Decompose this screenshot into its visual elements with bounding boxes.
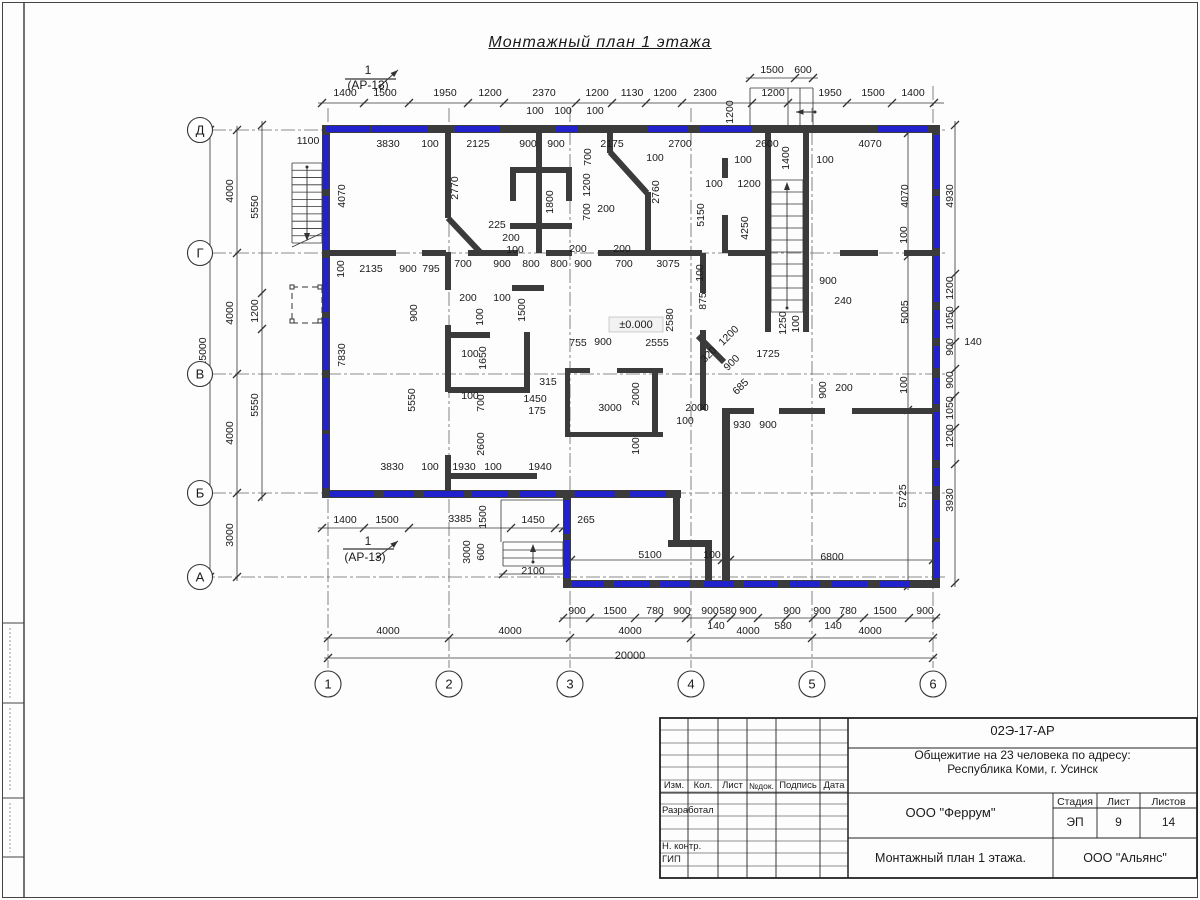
window [326, 126, 370, 132]
window [323, 318, 329, 370]
dim-text: 1500 [861, 87, 885, 99]
window [372, 126, 428, 132]
dim-text: 6800 [820, 551, 844, 563]
project-name-line2: Республика Коми, г. Усинск [848, 763, 1197, 777]
dim-text: 900 [783, 605, 801, 617]
dim-text: 4000 [376, 625, 400, 637]
dim-text: 2555 [645, 337, 669, 349]
dim-text: 900 [399, 263, 417, 275]
window [323, 434, 329, 488]
dim-text: 140 [707, 620, 725, 632]
dim-text: 1200 [581, 173, 593, 197]
window [323, 258, 329, 312]
col-podpis: Подпись [776, 781, 820, 792]
wall [722, 158, 728, 178]
dim-text: 700 [582, 148, 594, 166]
dim-text: 100 [898, 226, 910, 244]
dim-text: 1050 [944, 396, 956, 420]
porch-post [290, 285, 294, 289]
sheet-label: Лист [1097, 796, 1140, 808]
dim-text: (АР-13) [344, 550, 385, 564]
window [934, 256, 940, 302]
dim-text: 2300 [693, 87, 717, 99]
dim-text: 3075 [656, 258, 680, 270]
stage-label: Стадия [1053, 796, 1097, 808]
dim-text: 2600 [755, 138, 779, 150]
dim-text: 4000 [224, 179, 236, 203]
window [520, 491, 556, 497]
dim-text: 1500 [760, 64, 784, 76]
wall [565, 368, 570, 437]
dim-text: 4000 [498, 625, 522, 637]
dim-text: 265 [577, 514, 595, 526]
dim-text: 5550 [406, 388, 418, 412]
porch-post [290, 319, 294, 323]
dim-text: 100 [461, 348, 479, 360]
axis-label: 4 [687, 677, 694, 692]
dim-text: 900 [739, 605, 757, 617]
dim-text: 3000 [598, 402, 622, 414]
stair-arrow [530, 544, 536, 552]
dim-text: 3930 [944, 488, 956, 512]
dim-text: 1200 [249, 299, 261, 323]
wall [728, 250, 767, 256]
role-developed: Разработал [662, 806, 714, 817]
dim-text: 1950 [818, 87, 842, 99]
porch-outline [292, 287, 322, 323]
role-ncontr: Н. контр. [662, 842, 701, 853]
sheets-total: 14 [1140, 816, 1197, 830]
dim-text: 2000 [630, 382, 642, 406]
dim-text: 225 [488, 219, 506, 231]
window [323, 378, 329, 430]
dim-text: 100 [646, 152, 664, 164]
dim-text: 900 [916, 605, 934, 617]
dim-text: 100 [705, 178, 723, 190]
col-ndok: №док. [747, 782, 776, 792]
drawing-name: Монтажный план 1 этажа. [848, 851, 1053, 865]
dim-text: 1940 [528, 461, 552, 473]
stair-arrow [784, 182, 790, 190]
dim-text: 2125 [466, 138, 490, 150]
dim-text: 580 [719, 605, 737, 617]
window [614, 581, 650, 587]
dim-text: 7830 [336, 343, 348, 367]
dim-text: 4000 [224, 421, 236, 445]
wall [510, 167, 572, 173]
dim-text: 100 [630, 437, 642, 455]
dim-text: 5150 [695, 203, 707, 227]
dim-text: 4000 [858, 625, 882, 637]
dim-text: 900 [944, 371, 956, 389]
dim-text: 100 [703, 549, 721, 561]
window [660, 581, 690, 587]
window [880, 581, 910, 587]
wall [565, 432, 663, 437]
dim-text: 780 [646, 605, 664, 617]
window [455, 126, 500, 132]
dim-text: 200 [502, 232, 520, 244]
dim-text: 4000 [224, 301, 236, 325]
drawing-sheet: 1400150019501200237012001130120023001200… [0, 0, 1200, 900]
wall [546, 250, 572, 256]
wall [722, 414, 730, 584]
dim-text: 1950 [433, 87, 457, 99]
dim-text: 900 [594, 336, 612, 348]
dim-text: 200 [569, 243, 587, 255]
dim-text: 900 [574, 258, 592, 270]
window [832, 581, 868, 587]
col-izm: Изм. [660, 781, 688, 792]
axis-label: Г [196, 246, 203, 261]
window [564, 540, 570, 578]
dim-text: 100 [554, 105, 572, 117]
dim-text: 1130 [621, 87, 644, 99]
stage-value: ЭП [1053, 816, 1097, 830]
dim-text: 5725 [897, 484, 909, 508]
dim-text: 100 [676, 415, 694, 427]
role-gip: ГИП [662, 855, 681, 866]
wall [510, 173, 516, 201]
dim-text: 1200 [944, 276, 956, 300]
dim-text: 1200 [944, 424, 956, 448]
org-designer: ООО "Феррум" [848, 806, 1053, 821]
window [630, 491, 666, 497]
wall [510, 223, 572, 229]
dim-text: 200 [597, 203, 615, 215]
dim-text: 1050 [944, 306, 956, 330]
dim-text: 1400 [780, 146, 792, 170]
axis-label: Б [196, 486, 205, 501]
dim-text: 685 [730, 376, 751, 397]
dim-text: 140 [964, 336, 982, 348]
dim-text: 1200 [724, 100, 736, 124]
dim-text: 2600 [475, 432, 487, 456]
dim-text: 3830 [376, 138, 400, 150]
sheets-label: Листов [1140, 796, 1197, 808]
stair-start-dot [532, 561, 535, 564]
dim-text: 900 [547, 138, 565, 150]
dim-text: 315 [539, 376, 557, 388]
wall [330, 250, 396, 256]
dim-text: 900 [408, 304, 420, 322]
dim-text: 200 [459, 292, 477, 304]
axis-label: 6 [929, 677, 936, 692]
dim-text: 1200 [653, 87, 677, 99]
wall [448, 332, 490, 338]
dim-text: 1450 [523, 393, 547, 405]
dim-text: 5550 [249, 393, 261, 417]
dim-text: 4000 [736, 625, 760, 637]
dim-text: 1800 [544, 190, 556, 214]
window [704, 581, 734, 587]
dim-text: 3000 [461, 540, 473, 564]
dim-text: 5005 [899, 300, 911, 324]
window [878, 126, 928, 132]
dim-text: 600 [794, 64, 812, 76]
dim-text: 780 [839, 605, 857, 617]
dim-text: 5100 [638, 549, 662, 561]
window [934, 135, 940, 189]
dim-text: 900 [493, 258, 511, 270]
dim-text: 200 [613, 243, 631, 255]
dim-text: 900 [721, 352, 742, 373]
dim-text: 755 [569, 337, 587, 349]
window [934, 196, 940, 248]
dim-text: 100 [506, 244, 524, 256]
window [934, 412, 940, 460]
axis-label: Д [196, 123, 205, 138]
axis-label: 1 [324, 677, 331, 692]
doc-number: 02Э-17-АР [848, 724, 1197, 739]
arrow-head [390, 541, 398, 548]
window [330, 491, 374, 497]
col-list: Лист [718, 781, 747, 792]
dim-text: 1930 [452, 461, 476, 473]
dim-text: 140 [824, 620, 842, 632]
dim-text: 3385 [448, 513, 472, 525]
dim-text: 240 [834, 295, 852, 307]
window [384, 491, 414, 497]
axis-label: 2 [445, 677, 452, 692]
window [556, 126, 578, 132]
col-data: Дата [820, 781, 848, 792]
page-title: Монтажный план 1 этажа [0, 34, 1200, 52]
stair-arrow [304, 233, 310, 241]
dim-text: 2700 [668, 138, 692, 150]
sheet-number: 9 [1097, 816, 1140, 830]
arrow-dot [814, 111, 817, 114]
window [744, 581, 778, 587]
wall [722, 215, 728, 253]
dim-text: 3000 [224, 523, 236, 547]
wall [652, 370, 658, 435]
dim-text: 1500 [375, 514, 399, 526]
wall [645, 250, 702, 256]
level-mark: ±0.000 [619, 319, 653, 331]
axis-label: 5 [808, 677, 815, 692]
dim-text: 100 [421, 138, 439, 150]
dim-text: 700 [475, 394, 487, 412]
wall-diagonal [448, 218, 480, 252]
dim-text: 4070 [858, 138, 882, 150]
wall-diagonal [610, 152, 647, 193]
wall [904, 250, 932, 256]
window [934, 542, 940, 578]
window [934, 468, 940, 486]
dim-text: 4250 [739, 216, 751, 240]
dim-text: 2580 [664, 308, 676, 332]
window [700, 126, 752, 132]
dim-text: 100 [790, 315, 802, 333]
floor-plan-drawing: 1400150019501200237012001130120023001200… [188, 63, 982, 697]
dim-text: 700 [454, 258, 472, 270]
dim-text: 2100 [521, 565, 545, 577]
dim-text: 100 [484, 461, 502, 473]
dim-text: 4000 [618, 625, 642, 637]
dim-text: 1650 [477, 346, 489, 370]
dim-text: 700 [615, 258, 633, 270]
dim-text: 900 [673, 605, 691, 617]
dim-text: 900 [819, 275, 837, 287]
dim-text: 700 [581, 203, 593, 221]
dim-text: 800 [522, 258, 540, 270]
window [564, 500, 570, 534]
wall [445, 252, 451, 290]
window [934, 378, 940, 404]
dim-text: 875 [697, 292, 709, 310]
dim-text: 100 [335, 260, 347, 278]
dim-text: 900 [813, 605, 831, 617]
window [323, 135, 329, 189]
dim-text: 100 [421, 461, 439, 473]
window [934, 500, 940, 538]
axis-label: 3 [566, 677, 573, 692]
window [648, 126, 688, 132]
dim-text: 1400 [901, 87, 925, 99]
dim-text: 1200 [716, 323, 741, 348]
dim-text: 2760 [650, 180, 662, 204]
window [575, 491, 615, 497]
wall [668, 540, 712, 547]
dim-text: 1250 [777, 311, 789, 335]
axis-label: А [196, 570, 205, 585]
wall [852, 408, 932, 414]
dim-text: 100 [734, 154, 752, 166]
dim-text: 1450 [521, 514, 545, 526]
dim-text: 4070 [336, 184, 348, 208]
wall [765, 133, 771, 332]
dim-text: 200 [835, 382, 853, 394]
dim-text: 930 [733, 419, 751, 431]
wall [803, 133, 809, 332]
dim-text: 2000 [685, 402, 709, 414]
dim-text: 1500 [603, 605, 627, 617]
dim-text: 900 [817, 381, 829, 399]
stair-start-dot [306, 166, 309, 169]
window [934, 310, 940, 338]
dim-text: 1500 [516, 298, 528, 322]
window [934, 346, 940, 368]
dim-text: 900 [568, 605, 586, 617]
org-customer: ООО "Альянс" [1053, 851, 1197, 865]
axis-label: В [196, 367, 205, 382]
wall [722, 408, 754, 414]
dim-text: 1200 [737, 178, 761, 190]
dim-text: 100 [493, 292, 511, 304]
wall [524, 332, 530, 392]
dim-text: 100 [898, 376, 910, 394]
dim-text: 900 [944, 338, 956, 356]
wall [673, 495, 680, 543]
dim-text: (АР-13) [347, 78, 388, 92]
dim-text: 4070 [899, 184, 911, 208]
dim-text: 3830 [380, 461, 404, 473]
dim-text: 4930 [944, 184, 956, 208]
wall [445, 455, 451, 490]
wall [566, 173, 572, 201]
dim-text: 2175 [600, 138, 624, 150]
dim-text: 1200 [761, 87, 785, 99]
dim-text: 2135 [359, 263, 383, 275]
dim-text: 2370 [532, 87, 556, 99]
wall [840, 250, 878, 256]
window [424, 491, 464, 497]
project-name-line1: Общежитие на 23 человека по адресу: [848, 749, 1197, 763]
dim-text: 1100 [297, 135, 320, 147]
porch-post [318, 319, 322, 323]
dim-text: 1725 [756, 348, 780, 360]
dim-text: 1 [365, 534, 372, 548]
wall [779, 408, 825, 414]
window [790, 581, 820, 587]
dim-text: 1500 [873, 605, 897, 617]
dim-text: 600 [475, 543, 487, 561]
window [323, 196, 329, 250]
wall [512, 285, 544, 291]
wall [536, 133, 542, 253]
dim-text: 1 [365, 63, 372, 77]
dim-text: 5550 [249, 195, 261, 219]
dim-text: 100 [816, 154, 834, 166]
dim-text: 1200 [585, 87, 609, 99]
dim-text: 20000 [615, 650, 646, 662]
dim-text: 900 [701, 605, 719, 617]
dim-text: 1200 [478, 87, 502, 99]
dim-text: 100 [526, 105, 544, 117]
dim-text: 795 [422, 263, 440, 275]
wall [422, 250, 446, 256]
dim-text: 1500 [477, 505, 489, 529]
porch-post [318, 285, 322, 289]
window [572, 581, 604, 587]
dim-text: 1400 [333, 514, 357, 526]
dim-text: 175 [528, 405, 546, 417]
stair-start-dot [786, 307, 789, 310]
dim-text: 580 [774, 620, 792, 632]
dim-text: 100 [474, 308, 486, 326]
col-kol: Кол. [688, 781, 718, 792]
dim-text: 900 [519, 138, 537, 150]
window [472, 491, 508, 497]
dim-text: 800 [550, 258, 568, 270]
dim-text: 100 [586, 105, 604, 117]
wall [445, 473, 537, 479]
dim-text: 100 [694, 264, 706, 282]
dim-text: 2770 [449, 176, 461, 200]
wall [445, 133, 451, 218]
dim-text: 900 [759, 419, 777, 431]
